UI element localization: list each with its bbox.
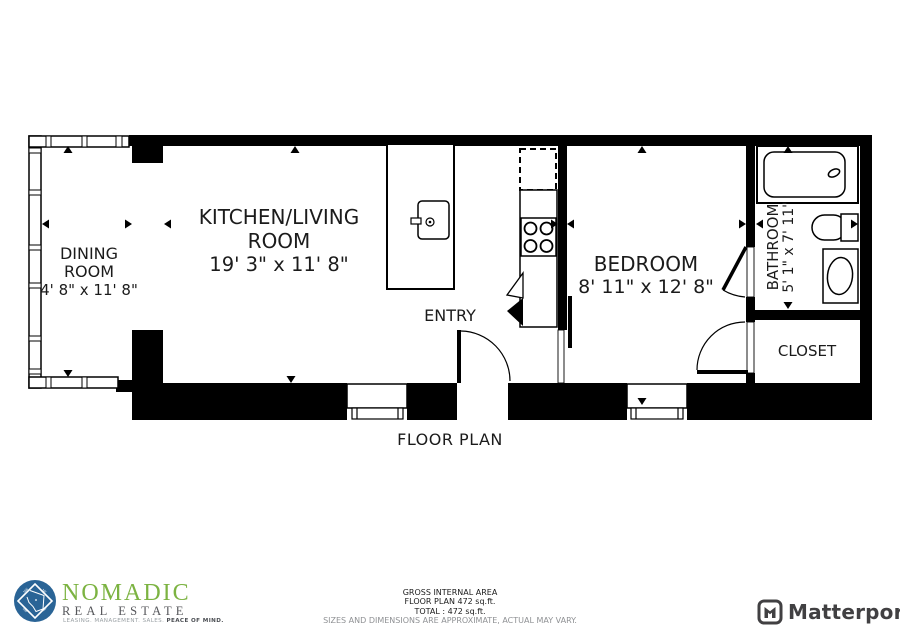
nomadic-logo-icon: NW NE SE SW [12, 578, 58, 624]
room-dimensions: 8' 11" x 12' 8" [546, 276, 746, 299]
kitchen-counter [507, 149, 557, 327]
gross-internal-area: GROSS INTERNAL AREA [300, 588, 600, 597]
nomadic-tagline: LEASING. MANAGEMENT. SALES. PEACE OF MIN… [63, 618, 224, 624]
closet-door [697, 322, 748, 374]
room-dimensions: 19' 3" x 11' 8" [159, 253, 399, 277]
steps-right [627, 384, 687, 419]
closet-label: CLOSET [757, 342, 857, 360]
steps-left [347, 384, 407, 419]
floor-plan-area: FLOOR PLAN 472 sq.ft. [300, 597, 600, 606]
room-name: BEDROOM [546, 253, 746, 276]
island-faucet [411, 218, 421, 224]
bathroom-label: BATHROOM 5' 1" x 7' 11" [765, 192, 799, 302]
floor-plan-page: DINING ROOM 4' 8" x 11' 8" KITCHEN/LIVIN… [0, 0, 900, 636]
tagline-gray: LEASING. MANAGEMENT. SALES. [63, 618, 166, 624]
entry-label: ENTRY [400, 306, 500, 325]
room-name: ROOM [29, 263, 149, 281]
total-area: TOTAL : 472 sq.ft. [300, 607, 600, 616]
counter-angled-end [507, 273, 523, 298]
matterport-brand-name: Matterport [788, 600, 900, 624]
bathroom-sink [823, 249, 858, 303]
room-name: KITCHEN/LIVING [159, 205, 399, 229]
matterport-logo-icon [757, 599, 783, 625]
bedroom-label: BEDROOM 8' 11" x 12' 8" [546, 253, 746, 299]
room-name: ROOM [159, 229, 399, 253]
area-summary: GROSS INTERNAL AREA FLOOR PLAN 472 sq.ft… [300, 588, 600, 626]
dining-room-label: DINING ROOM 4' 8" x 11' 8" [29, 245, 149, 299]
tagline-bold: PEACE OF MIND. [166, 618, 223, 624]
room-dimensions: 5' 1" x 7' 11" [781, 192, 797, 302]
room-dimensions: 4' 8" x 11' 8" [29, 281, 149, 299]
entry-door [457, 330, 510, 383]
disclaimer: SIZES AND DIMENSIONS ARE APPROXIMATE, AC… [300, 616, 600, 625]
bedroom-door-leaf [568, 296, 572, 348]
nomadic-brand-subtitle: REAL ESTATE [62, 604, 188, 619]
room-name: BATHROOM [765, 192, 781, 302]
refrigerator-dashed [520, 149, 556, 190]
plan-title: FLOOR PLAN [380, 430, 520, 449]
kitchen-living-room-label: KITCHEN/LIVING ROOM 19' 3" x 11' 8" [159, 205, 399, 277]
nomadic-brand-name: NOMADIC [62, 580, 191, 607]
room-name: DINING [29, 245, 149, 263]
